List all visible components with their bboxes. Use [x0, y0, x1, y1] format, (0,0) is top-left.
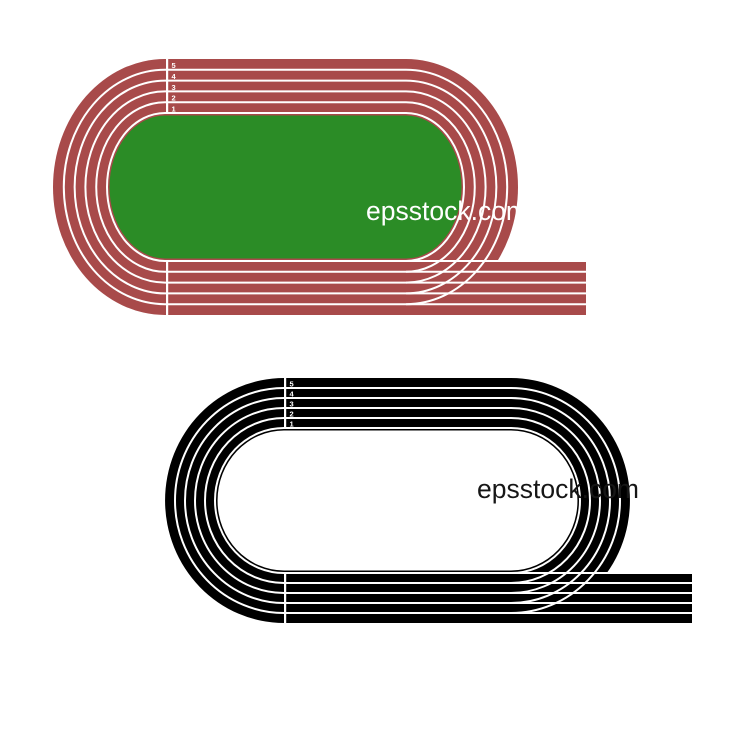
lane-number: 2	[172, 94, 176, 103]
start-line-top	[166, 59, 168, 113]
lane-number: 1	[172, 104, 176, 113]
lane-number: 1	[290, 420, 294, 429]
lane-number: 3	[172, 83, 176, 92]
start-line-bottom	[284, 573, 286, 623]
track-exit-straight	[165, 261, 586, 315]
start-line-top	[284, 378, 286, 428]
red-running-track: 54321epsstock.com	[53, 59, 586, 315]
infield	[110, 116, 462, 259]
running-tracks-scene: 54321epsstock.com 54321epsstock.com	[0, 0, 750, 750]
black-running-track: 54321epsstock.com	[165, 378, 692, 623]
watermark-text: epsstock.com	[477, 474, 639, 504]
track-exit-straight	[284, 573, 692, 623]
lane-number: 3	[290, 400, 294, 409]
watermark-text: epsstock.com	[366, 196, 528, 226]
illustration-canvas: 54321epsstock.com 54321epsstock.com	[0, 0, 750, 750]
lane-number: 5	[290, 380, 294, 389]
lane-number: 2	[290, 410, 294, 419]
lane-number: 5	[172, 61, 176, 70]
start-line-bottom	[166, 261, 168, 315]
